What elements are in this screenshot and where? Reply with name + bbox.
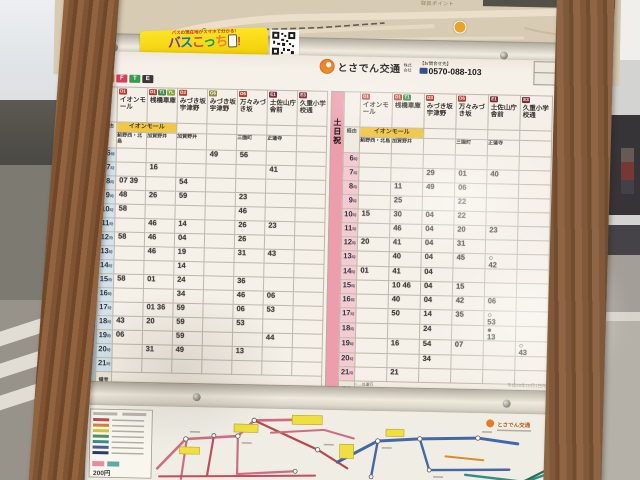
destination-header: D3みづき坂宇津野 [424, 93, 457, 129]
hour-label: 14時 [341, 266, 357, 280]
destination-header: E3久重小学校通 [520, 95, 553, 131]
via-stop: 三園町 [236, 134, 266, 151]
destination-header: D1T1桟橋車庫 [392, 93, 425, 129]
time-cell: 30 [390, 210, 422, 225]
destination-header: G6みづき坂宇津野 [207, 89, 238, 125]
hour-label: 17時 [340, 308, 356, 323]
time-cell [143, 289, 173, 304]
time-cell: 46 [233, 290, 263, 305]
upper-map-note: 取扱ポイント [421, 0, 454, 7]
time-cell [485, 240, 517, 255]
route-code-badge: D3 [426, 95, 434, 101]
destination-header: D6万々みづき坂 [456, 94, 489, 130]
time-cell: 14 [420, 309, 452, 325]
time-cell [262, 361, 292, 376]
time-cell [264, 235, 294, 250]
time-cell: 04 [422, 224, 454, 239]
time-cell [263, 277, 293, 292]
route-code-badge: D6 [458, 96, 466, 102]
time-cell: 59 [173, 317, 203, 332]
route-chip: F [116, 74, 127, 82]
time-cell [517, 254, 549, 270]
time-cell: 22 [454, 211, 486, 226]
hour-label: 19時 [339, 338, 355, 353]
time-cell [487, 156, 519, 171]
via-stop [423, 138, 455, 155]
time-cell: 49 [172, 345, 202, 360]
time-cell: 59 [172, 331, 202, 346]
timetable-table: D1イオンモールD1T1YL桟橋車庫D3みづき坂宇津野G6みづき坂宇津野D6万々… [95, 86, 328, 392]
route-code-badge: T1 [403, 94, 411, 100]
route-chip: T [129, 75, 140, 83]
time-cell: 43 [264, 249, 294, 264]
time-cell: 04 [174, 233, 204, 248]
time-cell: 26 [234, 234, 264, 249]
hour-label: 15時 [97, 274, 113, 288]
time-cell [144, 261, 174, 276]
time-cell [515, 356, 547, 371]
route-code-badge: E3 [522, 97, 530, 103]
time-cell: 04 [421, 238, 453, 253]
time-cell: 40 [389, 252, 421, 268]
time-cell: 46 [235, 206, 265, 221]
time-cell [113, 288, 143, 303]
time-cell: 24 [173, 275, 203, 290]
time-cell [295, 208, 325, 223]
time-cell: 01 [143, 275, 173, 290]
time-cell: 54 [419, 339, 451, 355]
holiday-timetable: 土日祝 D1イオンモールD1T1桟橋車庫D3みづき坂宇津野D6万々みづき坂E1土… [325, 91, 553, 401]
route-code-badge: D1 [149, 89, 157, 95]
time-cell [116, 162, 146, 177]
time-cell: 11 [390, 182, 422, 197]
route-chip: E [142, 75, 153, 83]
time-cell [486, 198, 518, 213]
time-cell [175, 205, 205, 220]
time-cell [451, 325, 483, 341]
time-cell [265, 179, 295, 194]
route-code-badge: D3 [179, 90, 187, 96]
hour-label: 16時 [340, 294, 356, 308]
time-cell [518, 184, 550, 199]
destination-header: E1土佐山庁舎前 [488, 95, 521, 131]
time-cell [518, 198, 550, 213]
timetable-table: D1イオンモールD1T1桟橋車庫D3みづき坂宇津野D6万々みづき坂E1土佐山庁舎… [338, 91, 553, 400]
time-cell: 16 [146, 163, 176, 178]
time-cell [263, 319, 293, 334]
hour-label: 10時 [342, 209, 358, 223]
time-cell: 54 [175, 177, 205, 192]
screw-icon [500, 51, 508, 59]
route-code-badge: D6 [239, 91, 247, 97]
time-cell [145, 177, 175, 192]
route-code-badge: E1 [269, 92, 277, 98]
hour-label: 19時 [96, 330, 112, 344]
time-cell [516, 311, 548, 327]
destination-header: D3みづき坂宇津野 [177, 88, 208, 124]
time-cell [202, 332, 232, 347]
time-cell: 40 [388, 295, 420, 310]
time-cell [176, 163, 206, 178]
time-cell: ○ 42 [485, 254, 517, 270]
time-cell [294, 264, 324, 279]
time-cell: 22 [454, 197, 486, 212]
time-cell [145, 205, 175, 220]
time-cell [451, 355, 483, 370]
time-cell [112, 358, 142, 373]
time-cell: 46 [144, 233, 174, 248]
time-cell [172, 359, 202, 374]
time-cell: ● 13 [483, 326, 515, 342]
tosaden-logo-icon [319, 59, 334, 74]
time-cell [486, 212, 518, 227]
hour-label: 17時 [97, 302, 113, 316]
time-cell [359, 153, 391, 168]
time-cell [453, 268, 485, 283]
time-cell: 46 [144, 247, 174, 262]
time-cell [295, 180, 325, 195]
time-cell: 53 [263, 305, 293, 320]
time-cell: 23 [235, 192, 265, 207]
time-cell [114, 246, 144, 261]
time-cell: 20 [357, 237, 389, 252]
time-cell [455, 155, 487, 170]
time-cell [264, 263, 294, 278]
time-cell: 58 [114, 232, 144, 247]
via-stop: 加賀野井 [176, 133, 206, 150]
time-cell [516, 297, 548, 312]
time-cell: 49 [206, 150, 236, 165]
bottom-route-map: 200円 [85, 405, 558, 480]
hour-label: 16時 [97, 288, 113, 302]
hour-label: 14時 [98, 260, 114, 274]
via-stop [206, 134, 236, 151]
route-code-badge: E3 [299, 92, 307, 98]
time-cell [295, 222, 325, 237]
time-cell: 56 [236, 150, 266, 165]
hour-label: 6時 [343, 153, 359, 167]
time-cell: 01 [455, 169, 487, 184]
time-cell: 50 [388, 309, 420, 325]
time-cell: 41 [389, 238, 421, 253]
time-cell [235, 178, 265, 193]
hour-label: 7時 [343, 167, 359, 181]
time-cell: 26 [145, 191, 175, 206]
time-cell [518, 212, 550, 227]
revision-note: 平成28年10月1日改正 [507, 383, 551, 390]
hour-label: 18時 [339, 323, 355, 338]
time-cell: 04 [421, 267, 453, 282]
time-cell [203, 318, 233, 333]
time-cell: 06 [233, 304, 263, 319]
time-cell: 35 [452, 310, 484, 326]
time-cell: 59 [175, 191, 205, 206]
time-cell: 15 [358, 209, 390, 224]
route-code-badge: E1 [490, 96, 498, 102]
time-cell: 25 [390, 196, 422, 211]
time-cell [355, 367, 387, 382]
time-cell [356, 308, 388, 324]
time-cell: 34 [419, 354, 451, 369]
screw-icon [503, 400, 511, 408]
time-cell: 23 [265, 221, 295, 236]
time-cell [357, 251, 389, 267]
hour-label: 12時 [341, 237, 357, 251]
time-cell [205, 192, 235, 207]
time-cell [355, 353, 387, 368]
time-cell [176, 149, 206, 164]
destination-header: E3久重小学校通 [297, 91, 328, 127]
time-cell [486, 184, 518, 199]
company-name: とさでん交通 [337, 59, 400, 75]
time-cell [517, 240, 549, 255]
time-cell: 20 [143, 317, 173, 332]
time-cell [422, 196, 454, 211]
time-cell: 41 [389, 267, 421, 282]
time-cell [116, 148, 146, 163]
hour-label: 11時 [342, 223, 358, 237]
time-cell [294, 236, 324, 251]
phone-number: 0570-088-103 [419, 66, 481, 77]
bus-stop-information-board: 取扱ポイント バスの現在地がスマホで分かる! バスこっち! [45, 0, 621, 480]
time-cell: 31 [234, 248, 264, 263]
pedestrian [621, 148, 634, 194]
time-cell [484, 283, 516, 298]
time-cell [483, 341, 515, 357]
time-cell: 07 39 [116, 176, 146, 191]
map-legend: 200円 [89, 409, 152, 478]
time-cell [115, 218, 145, 233]
time-cell [203, 304, 233, 319]
time-cell [232, 360, 262, 375]
time-cell [387, 354, 419, 369]
route-code-badge: YL [167, 89, 175, 95]
time-cell: 31 [453, 239, 485, 254]
time-cell: 48 [115, 190, 145, 205]
time-cell [356, 294, 388, 309]
hour-label: 21時 [96, 358, 112, 372]
time-cell: 23 [486, 226, 518, 241]
time-cell: 26 [235, 220, 265, 235]
time-cell [519, 156, 551, 171]
via-stop: 加賀野井 [391, 138, 423, 155]
screw-icon [193, 393, 201, 401]
time-cell [391, 168, 423, 183]
time-cell: ○ 43 [515, 341, 547, 357]
time-cell [517, 269, 549, 284]
time-cell: 06 [454, 183, 486, 198]
time-cell: 20 [454, 225, 486, 240]
time-cell [266, 151, 296, 166]
photo-of-bus-timetable-board: 取扱ポイント バスの現在地がスマホで分かる! バスこっち! [0, 0, 640, 480]
time-cell: 42 [452, 296, 484, 311]
company-suffix: 株式会社 [404, 63, 414, 72]
time-cell [355, 338, 387, 354]
time-cell [112, 344, 142, 359]
phone-badge-icon [420, 68, 428, 74]
route-code-badge: D1 [119, 88, 127, 94]
destination-header: D1イオンモール [117, 87, 148, 123]
time-cell [296, 152, 326, 167]
time-cell [292, 362, 322, 377]
time-cell [232, 332, 262, 347]
time-cell: 10 46 [388, 281, 420, 296]
route-code-badge: T1 [158, 89, 166, 95]
timetable-sheet: とさでん交通 株式会社 【お問合せ先】 0570-088-103 ADFTE 平… [81, 51, 566, 393]
sheet-header: とさでん交通 株式会社 【お問合せ先】 0570-088-103 [319, 59, 481, 77]
time-cell [202, 346, 232, 361]
via-stop: 正蓮寺 [266, 135, 296, 152]
hour-label: 21時 [339, 367, 355, 381]
time-cell [293, 292, 323, 307]
time-cell: 44 [262, 333, 292, 348]
time-cell [485, 269, 517, 284]
time-cell [293, 306, 323, 321]
contact-block: 【お問合せ先】 0570-088-103 [419, 61, 481, 77]
time-cell [293, 320, 323, 335]
time-cell [358, 181, 390, 196]
hour-label: 8時 [342, 181, 358, 195]
time-cell: 04 [420, 281, 452, 296]
hour-label: 20時 [339, 353, 355, 367]
time-cell [358, 195, 390, 210]
time-cell [114, 260, 144, 275]
time-cell: 34 [173, 289, 203, 304]
via-stop: 正蓮寺 [487, 140, 519, 157]
time-cell [359, 167, 391, 182]
time-cell [204, 248, 234, 263]
time-cell [451, 369, 483, 384]
via-stop: 薊野西・北島 [359, 137, 391, 154]
time-cell: 36 [233, 276, 263, 291]
destination-header: E1土佐山庁舎前 [267, 90, 298, 126]
time-cell [202, 360, 232, 375]
time-cell: 01 36 [143, 303, 173, 318]
time-cell [265, 193, 295, 208]
time-cell [295, 194, 325, 209]
time-cell: 04 [421, 252, 453, 268]
time-cell [142, 359, 172, 374]
time-cell [358, 223, 390, 238]
destination-header: D1イオンモール [360, 92, 393, 128]
time-cell: ○ 53 [484, 311, 516, 327]
time-cell [205, 178, 235, 193]
time-cell [356, 280, 388, 295]
via-stop: 薊野西・北島 [116, 132, 146, 149]
time-cell [296, 166, 326, 181]
time-cell [419, 368, 451, 383]
time-cell: 31 [142, 345, 172, 360]
via-stop [296, 136, 326, 153]
time-cell: 15 [452, 282, 484, 297]
time-cell: 07 [451, 340, 483, 356]
time-cell: 46 [390, 224, 422, 239]
time-cell [355, 323, 387, 339]
time-cell [518, 226, 550, 241]
time-cell: 13 [232, 346, 262, 361]
fare-label: 200円 [93, 469, 111, 477]
time-cell [206, 164, 236, 179]
hour-label: 18時 [97, 316, 113, 330]
time-cell: 14 [174, 261, 204, 276]
via-stop [519, 140, 551, 157]
time-cell [204, 234, 234, 249]
hour-label: 9時 [342, 195, 358, 209]
route-code-badge: D1 [362, 94, 370, 100]
time-cell [236, 164, 266, 179]
time-cell [262, 347, 292, 362]
time-cell: 43 [113, 316, 143, 331]
time-cell [265, 207, 295, 222]
destination-header: D1T1YL桟橋車庫 [147, 88, 178, 124]
hour-label: 13時 [341, 251, 357, 266]
time-cell: 19 [174, 247, 204, 262]
time-cell: 06 [484, 297, 516, 312]
time-cell: 58 [113, 274, 143, 289]
time-cell [113, 302, 143, 317]
time-cell: 58 [115, 204, 145, 219]
time-cell: 06 [263, 291, 293, 306]
time-cell: 21 [387, 368, 419, 383]
exclaim-mark: ! [237, 34, 240, 48]
time-cell [203, 290, 233, 305]
time-cell: 53 [233, 318, 263, 333]
time-cell [391, 154, 423, 169]
time-cell [483, 356, 515, 371]
time-cell [294, 250, 324, 265]
time-cell [292, 348, 322, 363]
time-cell: 40 [487, 170, 519, 185]
time-cell: 49 [422, 182, 454, 197]
route-code-badge: D1 [394, 94, 402, 100]
time-cell [515, 326, 547, 342]
time-cell: 59 [173, 303, 203, 318]
time-cell [292, 334, 322, 349]
time-cell [234, 262, 264, 277]
route-code-badge: G6 [209, 90, 217, 96]
via-label: 経由 [343, 127, 360, 153]
time-cell [519, 170, 551, 185]
time-cell: 29 [423, 168, 455, 183]
sticker-title: バスこっち! [140, 33, 268, 51]
time-cell [146, 149, 176, 164]
time-cell [203, 276, 233, 291]
hour-label: 15時 [340, 280, 356, 294]
time-cell: 06 [112, 330, 142, 345]
time-cell [204, 262, 234, 277]
time-cell [293, 278, 323, 293]
time-cell [205, 220, 235, 235]
hour-label: 20時 [96, 344, 112, 358]
time-cell: 24 [419, 324, 451, 340]
time-cell: 41 [266, 165, 296, 180]
time-cell: 16 [387, 339, 419, 355]
time-cell [205, 206, 235, 221]
via-stop: 三園町 [455, 139, 487, 156]
time-cell: 04 [420, 295, 452, 310]
destination-header: D6万々みづき坂 [237, 89, 268, 125]
time-cell: 04 [422, 210, 454, 225]
time-cell: 01 [357, 266, 389, 281]
via-stop: 加賀野井 [146, 133, 176, 150]
time-cell [516, 283, 548, 298]
time-cell: 14 [175, 219, 205, 234]
time-cell [142, 331, 172, 346]
weekday-timetable: 平日 D1イオンモールD1T1YL桟橋車庫D3みづき坂宇津野G6みづき坂宇津野D… [82, 86, 328, 392]
time-cell: 45 [453, 253, 485, 269]
time-cell: 46 [145, 219, 175, 234]
time-cell [387, 324, 419, 340]
